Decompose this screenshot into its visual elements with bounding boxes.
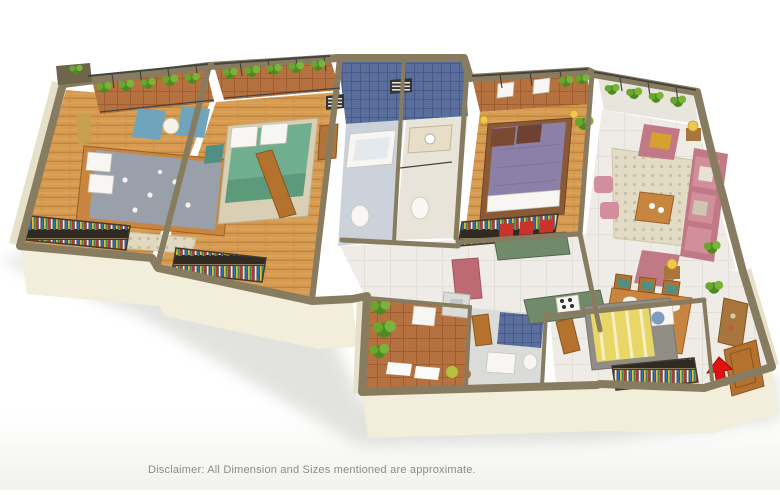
toilet-3	[523, 354, 537, 370]
bedside-lamp	[480, 116, 488, 124]
bar-stool-red	[539, 219, 554, 233]
sofa-pillow	[692, 200, 708, 216]
brown-pillow	[516, 124, 542, 144]
round-table	[163, 118, 179, 134]
blue-round-cushion	[652, 312, 665, 325]
bed-1-pillow	[88, 174, 114, 194]
cup	[649, 203, 655, 209]
bedside-lamp	[570, 110, 578, 118]
bar-stool-red	[499, 223, 514, 237]
decor	[728, 325, 733, 330]
table-lamp	[667, 259, 677, 269]
green-stool	[446, 366, 458, 378]
balcony-chair	[533, 78, 550, 94]
wall-art	[76, 112, 92, 146]
toilet-2	[411, 197, 429, 219]
bed-2-pillow	[260, 123, 288, 145]
gas-stove	[556, 295, 580, 313]
toilet-1	[351, 205, 369, 227]
floorplan-render: Disclaimer: All Dimension and Sizes ment…	[0, 0, 780, 490]
floor-mat	[386, 362, 412, 376]
bed-1-pillow	[86, 152, 112, 172]
basin	[425, 134, 435, 144]
coffee-table	[635, 192, 674, 224]
armchair-blue	[132, 108, 166, 140]
bed-2-pillow	[230, 126, 258, 148]
wash-basin	[486, 352, 516, 374]
bar-stool-red	[519, 221, 534, 235]
floorplan-svg	[0, 0, 780, 490]
decor	[730, 313, 735, 318]
floor-mat	[414, 366, 440, 380]
cup	[658, 207, 664, 213]
brown-pillow	[490, 127, 516, 147]
armchair-cushion	[649, 132, 672, 150]
balcony-chair	[497, 82, 514, 98]
bathroom-3-door	[472, 314, 492, 346]
ottoman	[600, 202, 619, 219]
teal-chair	[204, 144, 224, 164]
ottoman	[594, 176, 613, 193]
console-sideboard	[718, 298, 748, 348]
table-lamp	[688, 121, 698, 131]
disclaimer-text: Disclaimer: All Dimension and Sizes ment…	[148, 464, 476, 476]
utility-sink	[412, 306, 436, 326]
bathtub-inner	[353, 137, 390, 161]
